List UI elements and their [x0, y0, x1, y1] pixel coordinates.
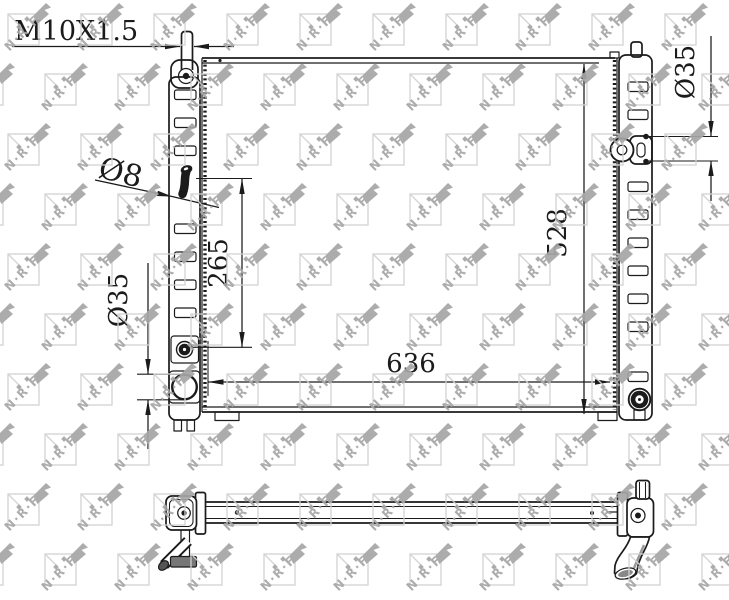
bolt-dot [643, 159, 649, 165]
drain-tab [634, 410, 645, 420]
dimensions: M10X1.5 Ø8 Ø35 265 636 5 [12, 16, 718, 449]
small-inlet-pipe [179, 164, 193, 194]
bolt-dot [643, 134, 649, 140]
right-tank [610, 42, 652, 420]
thread-label: M10X1.5 [14, 16, 138, 47]
drawing-svg: N·R·F [0, 0, 729, 600]
tank-leg [187, 420, 195, 431]
rivet-dot [235, 510, 239, 514]
mid-port [171, 336, 199, 363]
rivet-dot [218, 59, 221, 62]
top-step [610, 52, 619, 58]
left-tank-slots [175, 90, 197, 318]
large-left-port [169, 371, 200, 403]
port-spacing-label: 265 [204, 238, 234, 288]
right-end-connector [614, 481, 653, 582]
drain-plug [629, 389, 651, 420]
radiator-technical-drawing: N·R·F [0, 0, 729, 600]
top-down-view [157, 481, 654, 582]
right-port-label: Ø35 [671, 45, 701, 99]
mount-foot [598, 412, 617, 421]
filler-neck-top [636, 481, 650, 500]
rivet-dot [590, 511, 594, 515]
tank-leg [174, 420, 182, 431]
left-tank [169, 32, 200, 432]
dim-thread: M10X1.5 [12, 16, 234, 47]
curved-outlet-pipe [614, 537, 649, 581]
left-end-connector [157, 493, 206, 573]
mount-foot [215, 412, 239, 421]
threaded-stud [182, 32, 193, 71]
dim-core-width: 636 [208, 341, 610, 396]
right-tank-slots [628, 82, 648, 382]
top-mount-bracket [171, 32, 198, 89]
core-height-label: 528 [543, 208, 573, 258]
core-width-label: 636 [386, 349, 436, 379]
mount-foot [171, 557, 197, 568]
dim-right-port: Ø35 [648, 36, 718, 201]
radiator-body-bar [205, 502, 618, 523]
dim-core-height: 528 [543, 64, 584, 414]
left-port-label: Ø35 [104, 273, 134, 327]
